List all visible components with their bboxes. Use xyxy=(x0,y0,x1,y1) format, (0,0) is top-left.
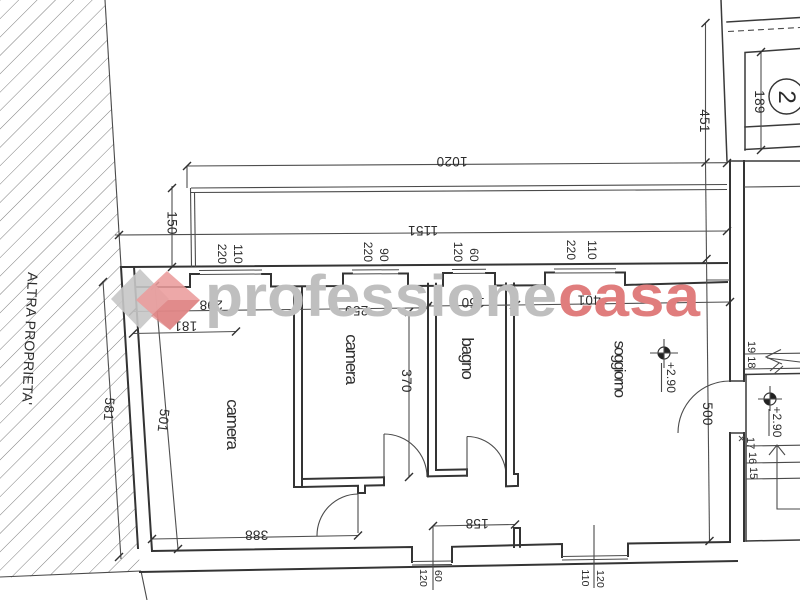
svg-text:150: 150 xyxy=(165,211,180,234)
svg-text:220: 220 xyxy=(361,242,375,263)
svg-text:1020: 1020 xyxy=(436,154,467,169)
svg-text:15: 15 xyxy=(747,467,759,479)
svg-text:388: 388 xyxy=(245,528,268,543)
svg-text:189: 189 xyxy=(752,90,767,113)
svg-text:camera: camera xyxy=(223,399,242,450)
svg-text:500: 500 xyxy=(700,402,715,425)
svg-text:camera: camera xyxy=(342,334,361,385)
svg-text:120: 120 xyxy=(417,569,429,587)
svg-text:2: 2 xyxy=(773,90,800,103)
svg-text:60: 60 xyxy=(432,570,444,582)
svg-text:60: 60 xyxy=(467,248,481,262)
svg-text:110: 110 xyxy=(585,240,599,260)
svg-text:16: 16 xyxy=(746,452,758,464)
svg-text:+2.90: +2.90 xyxy=(770,406,784,437)
svg-text:581: 581 xyxy=(101,397,118,421)
svg-text:451: 451 xyxy=(697,109,712,132)
svg-text:220: 220 xyxy=(564,240,578,261)
svg-text:120: 120 xyxy=(451,242,465,263)
svg-text:220: 220 xyxy=(215,244,229,265)
svg-text:+2.90: +2.90 xyxy=(664,362,678,393)
svg-text:370: 370 xyxy=(399,369,414,392)
svg-text:17: 17 xyxy=(744,437,756,449)
svg-text:501: 501 xyxy=(155,408,173,433)
svg-text:bagno: bagno xyxy=(458,337,477,379)
svg-text:90: 90 xyxy=(377,248,391,262)
svg-text:158: 158 xyxy=(465,516,488,531)
svg-text:professione: professione xyxy=(205,264,557,329)
svg-text:110: 110 xyxy=(579,569,591,586)
svg-text:soggiorno: soggiorno xyxy=(611,341,628,399)
svg-text:120: 120 xyxy=(594,570,606,588)
svg-text:110: 110 xyxy=(231,244,245,264)
svg-text:19 18: 19 18 xyxy=(745,341,757,369)
svg-text:1151: 1151 xyxy=(408,223,438,238)
svg-text:casa: casa xyxy=(558,264,701,329)
